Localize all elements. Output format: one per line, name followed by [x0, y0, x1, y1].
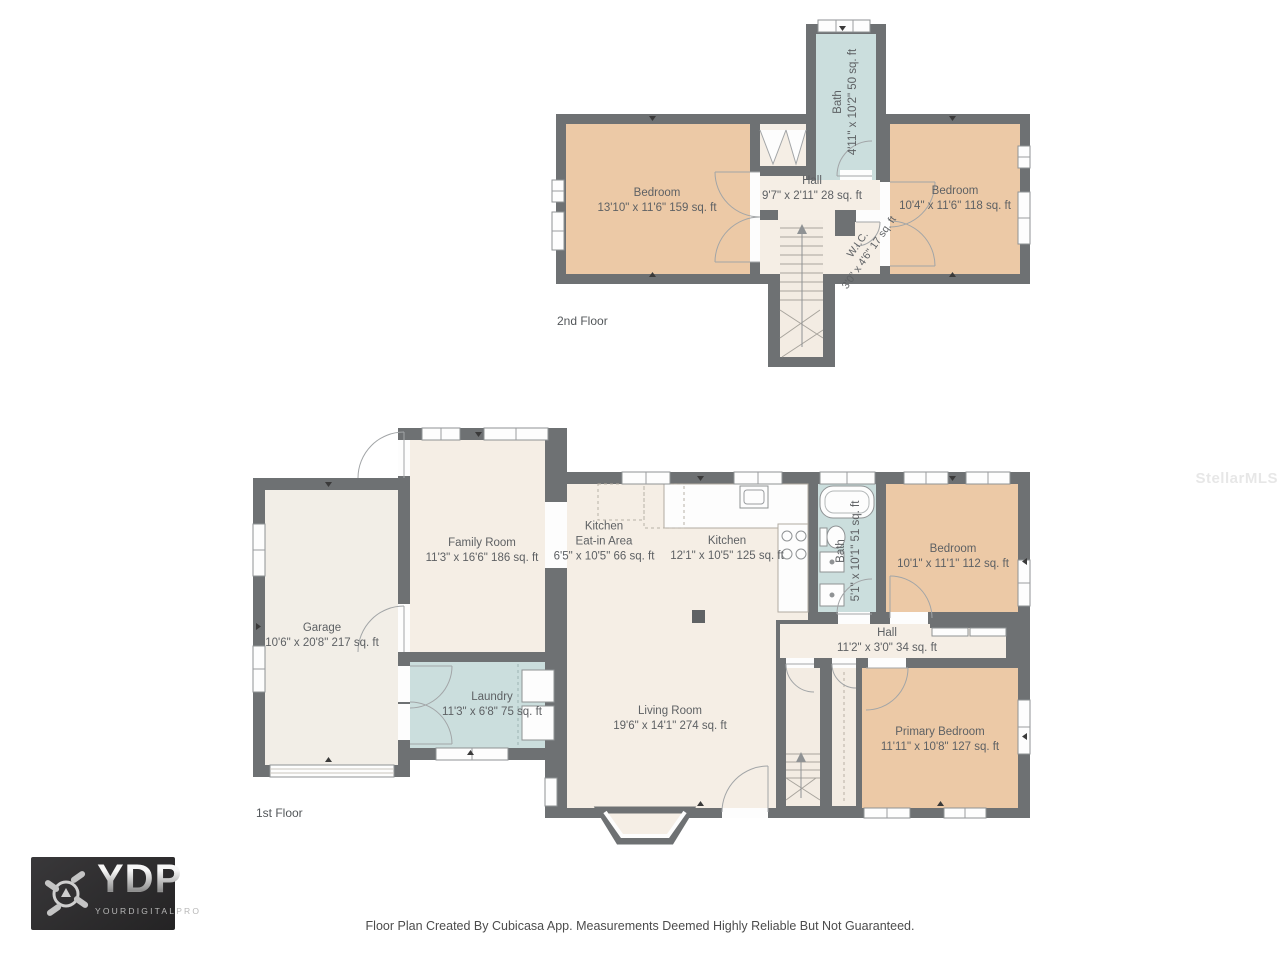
room-name: Bath — [834, 501, 849, 602]
logo-abbr-text: YDP — [97, 857, 182, 902]
room-label-bedroom-1f: Bedroom 10'1" x 11'1" 112 sq. ft — [897, 542, 1009, 572]
room-name: Bedroom — [899, 184, 1011, 199]
room-dims: 11'2" x 3'0" 34 sq. ft — [837, 641, 937, 656]
first-floor-label: 1st Floor — [256, 806, 303, 820]
room-name: Kitchen — [554, 520, 655, 535]
room-label-primary-bedroom: Primary Bedroom 11'11" x 10'8" 127 sq. f… — [881, 725, 999, 755]
room-name: Garage — [265, 621, 379, 636]
room-name: Laundry — [442, 690, 542, 705]
room-label-bath-1f: Bath 5'1" x 10'1" 51 sq. ft — [834, 501, 864, 602]
room-dims: 10'6" x 20'8" 217 sq. ft — [265, 636, 379, 651]
room-dims: 11'3" x 6'8" 75 sq. ft — [442, 705, 542, 720]
garage-door-icon — [270, 765, 394, 777]
footer-disclaimer: Floor Plan Created By Cubicasa App. Meas… — [0, 919, 1280, 933]
room-label-bedroom-left-2f: Bedroom 13'10" x 11'6" 159 sq. ft — [597, 186, 716, 216]
room-label-living-room: Living Room 19'6" x 14'1" 274 sq. ft — [613, 704, 727, 734]
room-label-laundry: Laundry 11'3" x 6'8" 75 sq. ft — [442, 690, 542, 720]
room-dims: 11'11" x 10'8" 127 sq. ft — [881, 740, 999, 755]
room-label-family-room: Family Room 11'3" x 16'6" 186 sq. ft — [426, 536, 539, 566]
room-dims: 12'1" x 10'5" 125 sq. ft — [670, 549, 784, 564]
logo-name-text: YOURDIGITALPRO — [95, 906, 201, 916]
room-name: Primary Bedroom — [881, 725, 999, 740]
room-name: Bedroom — [597, 186, 716, 201]
floor-plan-page: Bedroom 13'10" x 11'6" 159 sq. ft Hall 9… — [0, 0, 1280, 960]
support-post — [692, 610, 705, 623]
floor-plan-drawing — [0, 0, 1280, 960]
room-name: Living Room — [613, 704, 727, 719]
room-name: Hall — [837, 626, 937, 641]
room-name: Hall — [762, 174, 862, 189]
ydp-logo-icon — [37, 865, 95, 923]
ydp-logo: YDP YOURDIGITALPRO — [31, 857, 175, 930]
second-floor-label: 2nd Floor — [557, 314, 608, 328]
room-name: Bath — [831, 49, 846, 155]
room-dims: 10'4" x 11'6" 118 sq. ft — [899, 199, 1011, 214]
room-name: Bedroom — [897, 542, 1009, 557]
room-dims: 4'11" x 10'2" 50 sq. ft — [846, 49, 861, 155]
stairs-down-icon — [780, 220, 823, 357]
room-name-2: Eat-in Area — [554, 535, 655, 550]
room-dims: 11'3" x 16'6" 186 sq. ft — [426, 551, 539, 566]
room-label-kitchen-eat-in: Kitchen Eat-in Area 6'5" x 10'5" 66 sq. … — [554, 520, 655, 565]
room-dims: 19'6" x 14'1" 274 sq. ft — [613, 719, 727, 734]
room-name: Family Room — [426, 536, 539, 551]
kitchen-sink-icon — [740, 486, 768, 508]
stellar-mls-watermark: StellarMLS — [1195, 470, 1278, 487]
room-dims: 13'10" x 11'6" 159 sq. ft — [597, 201, 716, 216]
room-label-hall-1f: Hall 11'2" x 3'0" 34 sq. ft — [837, 626, 937, 656]
room-label-bath-2f: Bath 4'11" x 10'2" 50 sq. ft — [831, 49, 861, 155]
room-dims: 10'1" x 11'1" 112 sq. ft — [897, 557, 1009, 572]
room-label-bedroom-right-2f: Bedroom 10'4" x 11'6" 118 sq. ft — [899, 184, 1011, 214]
room-dims: 6'5" x 10'5" 66 sq. ft — [554, 549, 655, 564]
room-dims: 9'7" x 2'11" 28 sq. ft — [762, 189, 862, 204]
room-label-garage: Garage 10'6" x 20'8" 217 sq. ft — [265, 621, 379, 651]
room-name: Kitchen — [670, 534, 784, 549]
room-dims: 5'1" x 10'1" 51 sq. ft — [849, 501, 864, 602]
room-label-kitchen: Kitchen 12'1" x 10'5" 125 sq. ft — [670, 534, 784, 564]
room-label-hall-2f: Hall 9'7" x 2'11" 28 sq. ft — [762, 174, 862, 204]
bay-window-icon — [600, 810, 690, 841]
